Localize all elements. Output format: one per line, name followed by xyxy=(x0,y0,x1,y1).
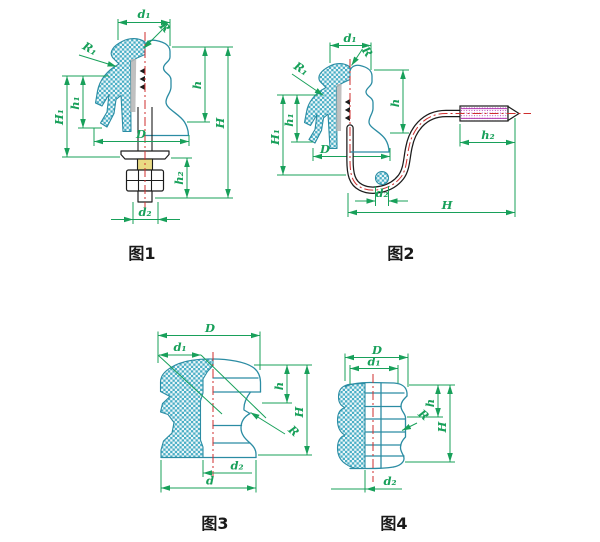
extension-line xyxy=(201,355,266,418)
drawing-canvas: d₁ R R₁ h₁ H₁ h H xyxy=(0,0,600,542)
figure-1: d₁ R R₁ h₁ H₁ h H xyxy=(52,7,233,263)
figure-caption: 图2 xyxy=(387,244,414,263)
profile-waist xyxy=(241,392,256,458)
thread-mark xyxy=(345,99,350,105)
insulator-section xyxy=(161,359,214,458)
cement-zone xyxy=(130,59,136,112)
insulator-profile xyxy=(350,65,389,152)
dim-label-h2: h₂ xyxy=(172,171,186,184)
dim-label-h1: h₁ xyxy=(68,96,82,109)
dim-label-d1: d₁ xyxy=(137,7,150,21)
center-line xyxy=(350,59,531,190)
thread-mark xyxy=(140,76,146,82)
figure-caption: 图3 xyxy=(201,514,228,533)
technical-drawing: d₁ R R₁ h₁ H₁ h H xyxy=(0,0,600,542)
dim-label-h2: h₂ xyxy=(481,128,494,142)
insulator-section xyxy=(338,384,366,469)
dim-label-d2: d₂ xyxy=(383,474,396,488)
thread-mark xyxy=(140,68,146,74)
dim-label-h: h xyxy=(190,81,204,89)
dim-label-h1: h₁ xyxy=(282,113,296,126)
dim-label-d1: d₁ xyxy=(367,355,380,369)
dimension-H: H xyxy=(258,365,312,455)
dim-label-H: H xyxy=(435,420,449,433)
dim-label-R1: R₁ xyxy=(79,38,100,58)
dim-label-D: D xyxy=(135,127,146,141)
dim-label-R: R xyxy=(415,406,432,424)
dim-label-h: h xyxy=(388,99,402,107)
leader-line xyxy=(251,413,286,435)
dim-label-D: D xyxy=(319,142,330,156)
thread-marks xyxy=(345,99,350,121)
wire-groove-section xyxy=(376,172,389,185)
dimension-h: h xyxy=(374,70,409,133)
dim-label-R: R xyxy=(156,18,173,35)
dim-label-H1: H₁ xyxy=(52,109,66,126)
dimension-R: R xyxy=(402,406,432,431)
dim-label-d2: d₂ xyxy=(230,459,243,473)
dimension-d2: d₂ xyxy=(331,470,402,493)
dim-label-h: h xyxy=(272,382,286,390)
leader-line xyxy=(402,423,417,431)
thread-mark xyxy=(140,84,146,90)
thread-marks xyxy=(140,68,146,90)
dim-label-d2: d₂ xyxy=(375,186,388,200)
dimension-h2: h₂ xyxy=(171,158,192,198)
dimension-h: h xyxy=(172,47,233,122)
dim-label-d1: d₁ xyxy=(173,340,186,354)
thread-mark xyxy=(345,115,350,121)
figure-2: D d₁ R R₁ xyxy=(268,31,531,263)
dim-label-d2: d₂ xyxy=(138,205,151,219)
dim-label-H: H xyxy=(213,116,227,129)
insulator-section xyxy=(305,64,351,149)
dimension-h2: h₂ xyxy=(460,118,515,217)
dim-label-H: H xyxy=(441,198,454,212)
dim-label-H1: H₁ xyxy=(268,129,282,146)
dim-label-H: H xyxy=(292,405,306,418)
figure-caption: 图1 xyxy=(128,244,155,263)
figure-4: D d₁ h R H d₂ 图4 xyxy=(331,343,455,533)
dimension-D: D xyxy=(94,127,189,146)
dim-label-d: d xyxy=(206,474,214,488)
dimension-H: H xyxy=(405,385,455,462)
dimension-H: H xyxy=(348,193,515,217)
dimension-d1: d₁ xyxy=(350,355,398,385)
figure-3: D d₁ h H R d₂ xyxy=(158,321,312,533)
profile-cap xyxy=(213,359,261,392)
dimension-d2: d₂ xyxy=(111,202,180,224)
dim-label-D: D xyxy=(204,321,215,335)
dimension-h: h xyxy=(254,365,312,403)
dim-label-d1: d₁ xyxy=(343,31,356,45)
dimension-R: R xyxy=(352,43,376,66)
figure-caption: 图4 xyxy=(380,514,407,533)
thread-mark xyxy=(345,107,350,113)
cement-zone xyxy=(336,84,341,131)
leader-line xyxy=(79,55,117,67)
dim-label-R: R xyxy=(285,422,302,439)
